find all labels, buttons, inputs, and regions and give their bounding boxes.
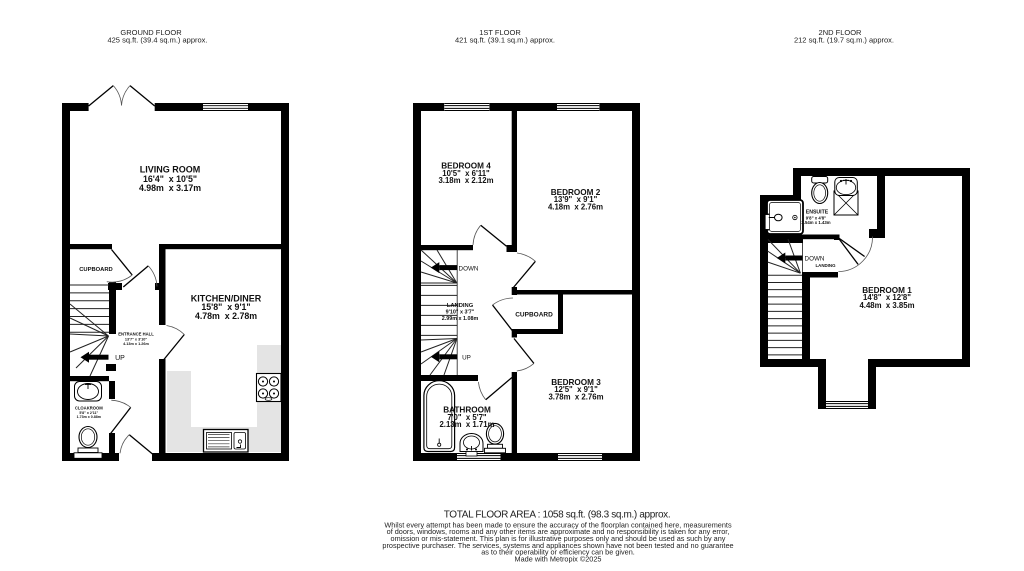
svg-text:13'7" x 3'10": 13'7" x 3'10" (125, 337, 147, 341)
svg-text:2.99m x 1.08m: 2.99m x 1.08m (442, 316, 479, 322)
svg-text:2.13m x 1.71m: 2.13m x 1.71m (439, 420, 494, 429)
svg-text:4.98m x 3.17m: 4.98m x 3.17m (139, 183, 201, 193)
svg-text:1.73m x 0.88m: 1.73m x 0.88m (77, 415, 101, 419)
svg-text:212 sq.ft. (19.7 sq.m.) approx: 212 sq.ft. (19.7 sq.m.) approx. (794, 36, 894, 45)
svg-text:UP: UP (462, 355, 471, 362)
svg-text:ENTRANCE HALL: ENTRANCE HALL (118, 331, 154, 336)
svg-text:LIVING ROOM: LIVING ROOM (140, 164, 201, 174)
svg-text:3.18m x 2.12m: 3.18m x 2.12m (438, 176, 493, 185)
svg-text:4.13m x 1.26m: 4.13m x 1.26m (123, 342, 149, 346)
svg-text:LANDING: LANDING (815, 263, 836, 268)
svg-text:CUPBOARD: CUPBOARD (515, 312, 553, 319)
svg-text:DOWN: DOWN (459, 265, 479, 272)
svg-text:Made with Metropix ©2025: Made with Metropix ©2025 (515, 555, 602, 564)
svg-text:2.54m x 1.43m: 2.54m x 1.43m (801, 220, 830, 225)
svg-text:425 sq.ft. (39.4 sq.m.) approx: 425 sq.ft. (39.4 sq.m.) approx. (107, 36, 207, 45)
svg-text:DOWN: DOWN (805, 256, 825, 263)
svg-text:421 sq.ft. (39.1 sq.m.) approx: 421 sq.ft. (39.1 sq.m.) approx. (455, 36, 555, 45)
svg-text:UP: UP (115, 355, 125, 362)
svg-text:LANDING: LANDING (447, 303, 474, 309)
svg-text:4.18m x 2.76m: 4.18m x 2.76m (548, 203, 603, 212)
svg-text:CUPBOARD: CUPBOARD (79, 267, 113, 273)
svg-text:3.78m x 2.76m: 3.78m x 2.76m (548, 393, 603, 402)
svg-text:9'10" x 3'7": 9'10" x 3'7" (446, 309, 475, 315)
svg-text:4.78m x 2.78m: 4.78m x 2.78m (195, 311, 257, 321)
svg-text:CLOAKROOM: CLOAKROOM (75, 406, 103, 411)
svg-text:4.48m x 3.85m: 4.48m x 3.85m (859, 301, 914, 310)
svg-text:TOTAL FLOOR AREA : 1058 sq.ft.: TOTAL FLOOR AREA : 1058 sq.ft. (98.3 sq.… (444, 509, 671, 520)
